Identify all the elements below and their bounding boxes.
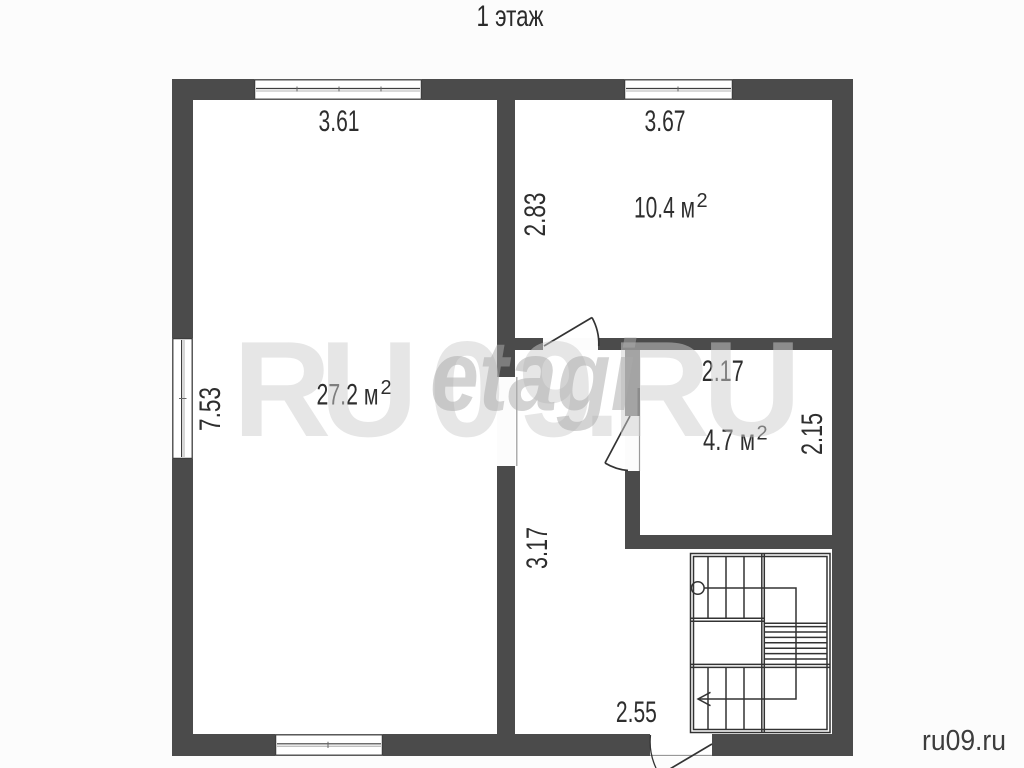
svg-text:2.83: 2.83 (519, 193, 552, 237)
svg-text:3.61: 3.61 (319, 105, 360, 138)
svg-text:ru09.ru: ru09.ru (922, 725, 1006, 757)
svg-text:2.55: 2.55 (616, 696, 657, 729)
svg-text:10.4 м: 10.4 м (634, 192, 695, 225)
svg-text:3.17: 3.17 (521, 527, 554, 569)
svg-text:3.67: 3.67 (645, 105, 686, 138)
svg-text:etagi: etagi (430, 320, 637, 432)
svg-text:2: 2 (697, 190, 708, 212)
svg-text:7.53: 7.53 (194, 387, 227, 431)
svg-text:1 этаж: 1 этаж (477, 0, 544, 33)
